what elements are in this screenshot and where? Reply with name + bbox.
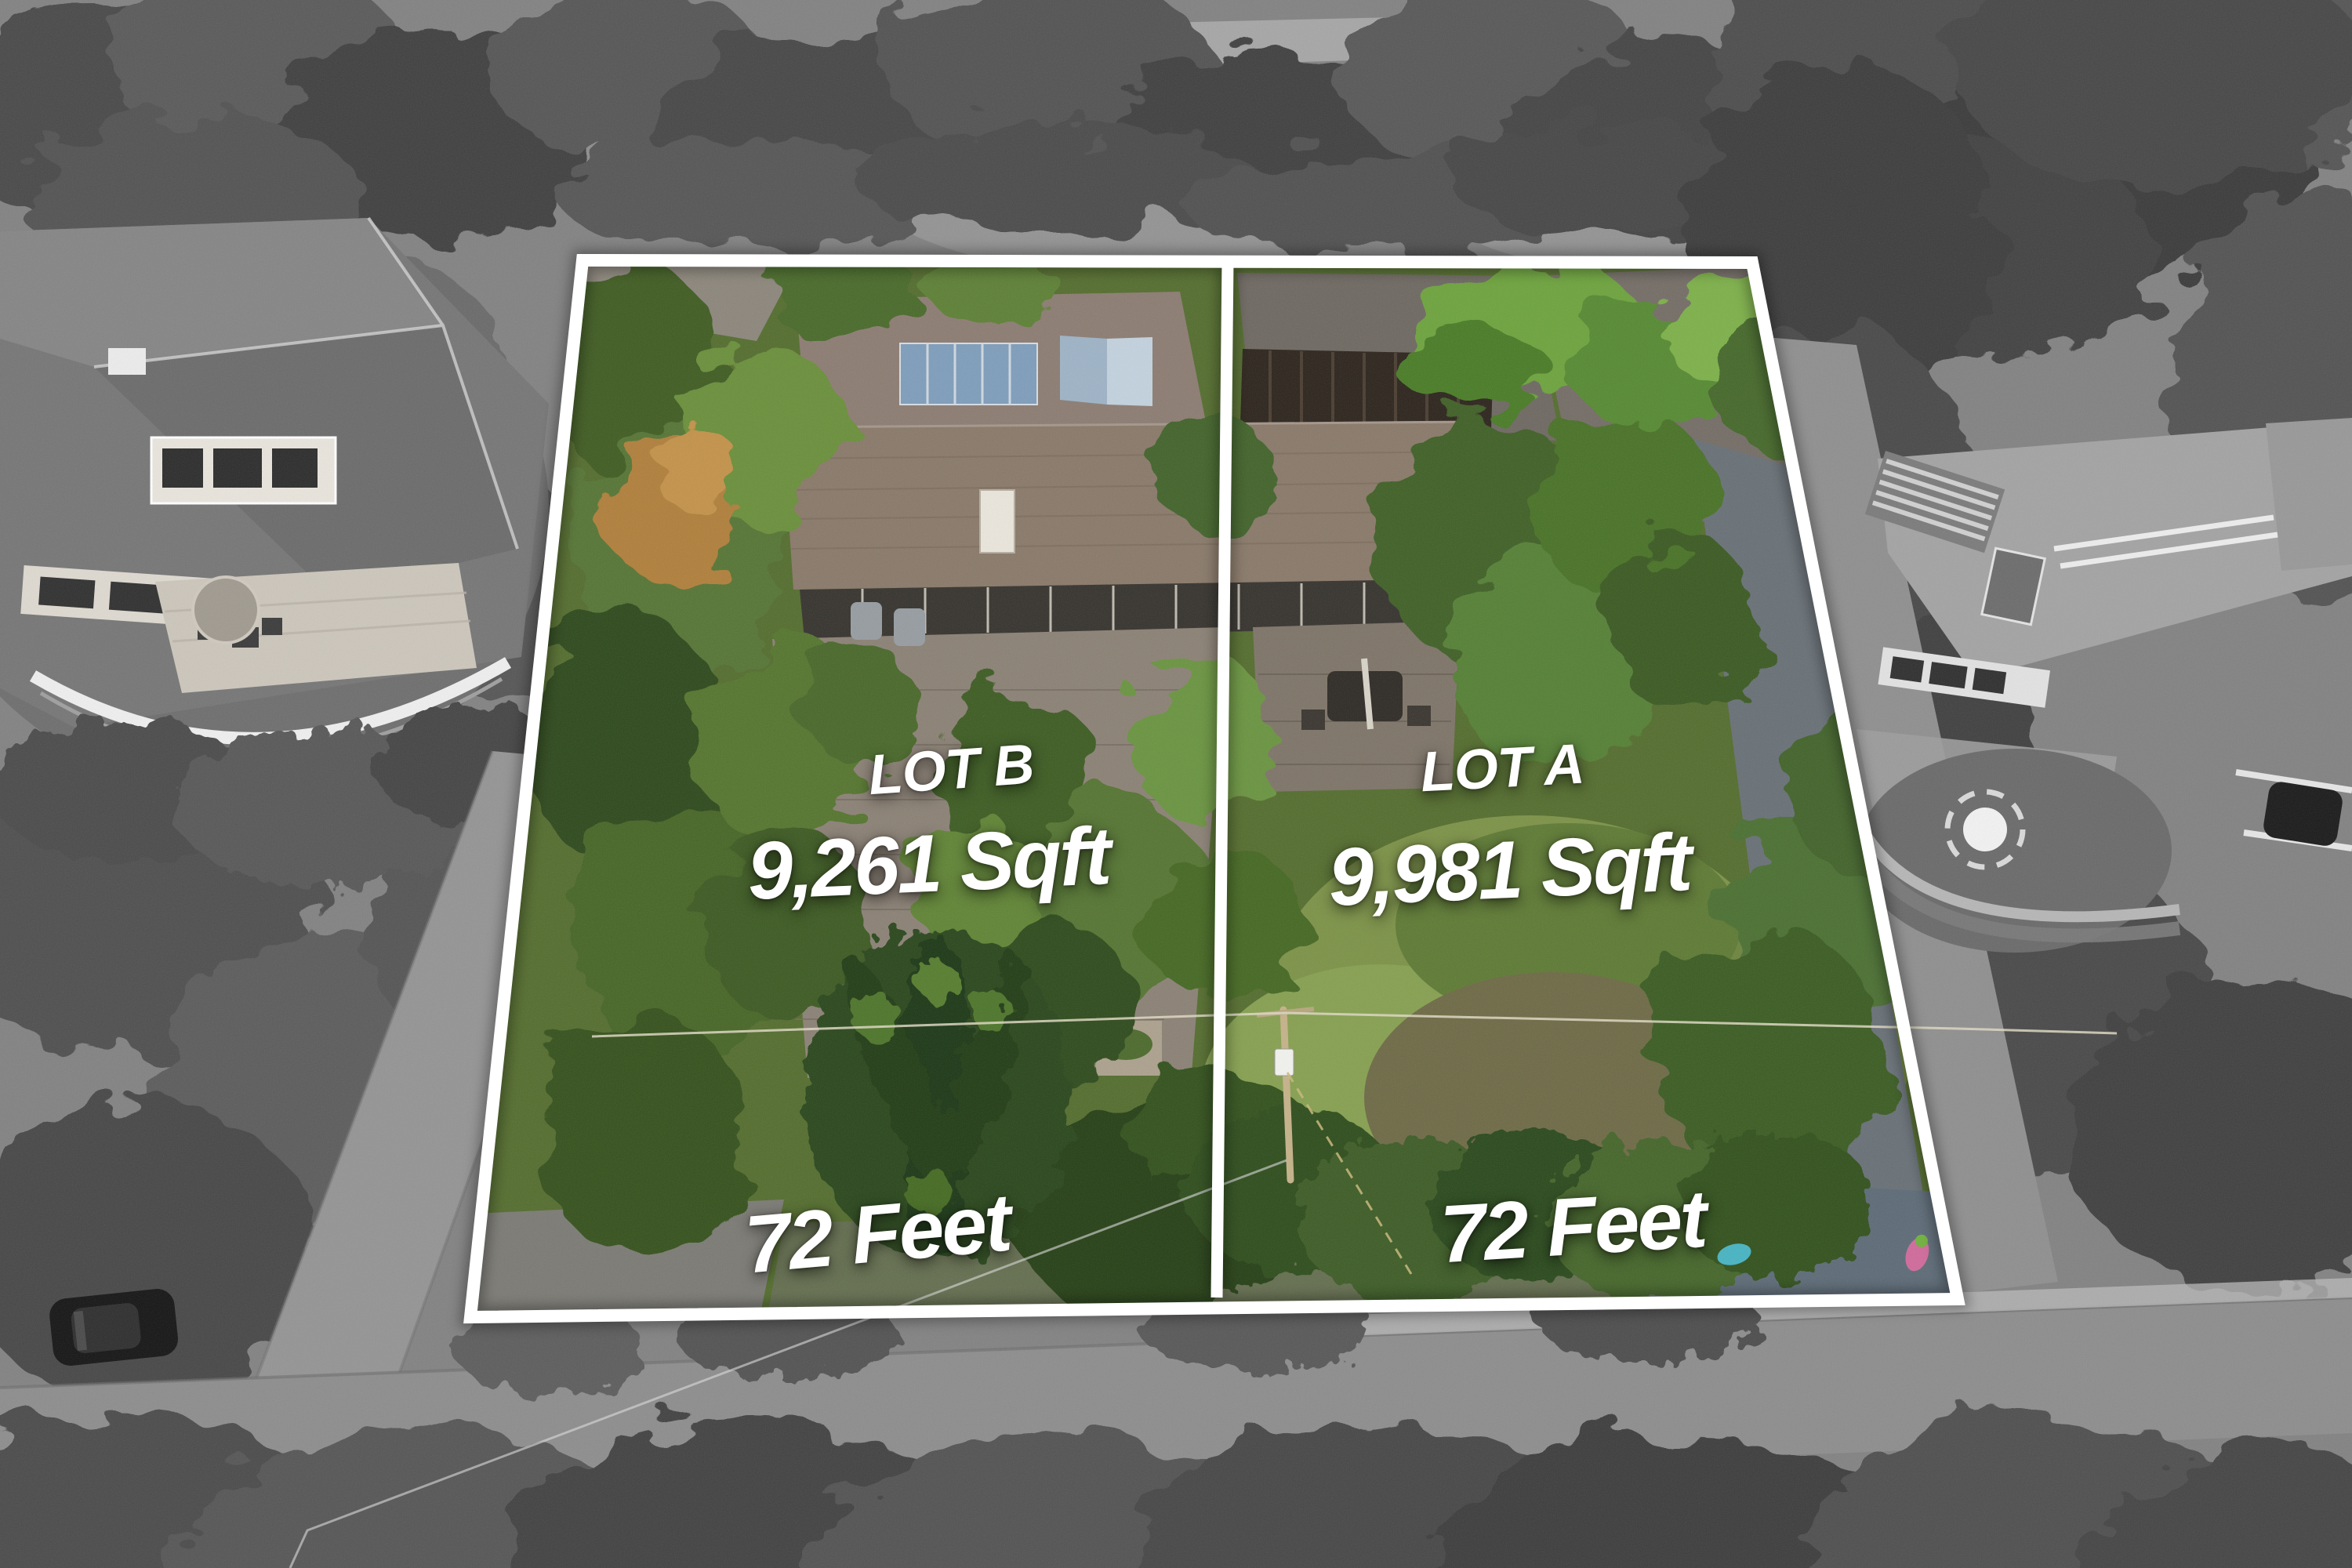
lot-a-frontage: 72 Feet bbox=[1438, 1178, 1707, 1276]
lot-a-area: 9,981 Sqft bbox=[1327, 822, 1691, 919]
lot-b-area: 9,261 Sqft bbox=[746, 815, 1110, 913]
aerial-photo: LOT B 9,261 Sqft 72 Feet LOT A 9,981 Sqf… bbox=[0, 0, 2352, 1568]
aerial-photo-canvas bbox=[0, 0, 2352, 1568]
lot-b-label: LOT B bbox=[866, 736, 1035, 804]
photo-grain bbox=[0, 0, 2352, 1568]
lot-b-frontage: 72 Feet bbox=[742, 1181, 1012, 1286]
lot-a-label: LOT A bbox=[1419, 736, 1585, 801]
